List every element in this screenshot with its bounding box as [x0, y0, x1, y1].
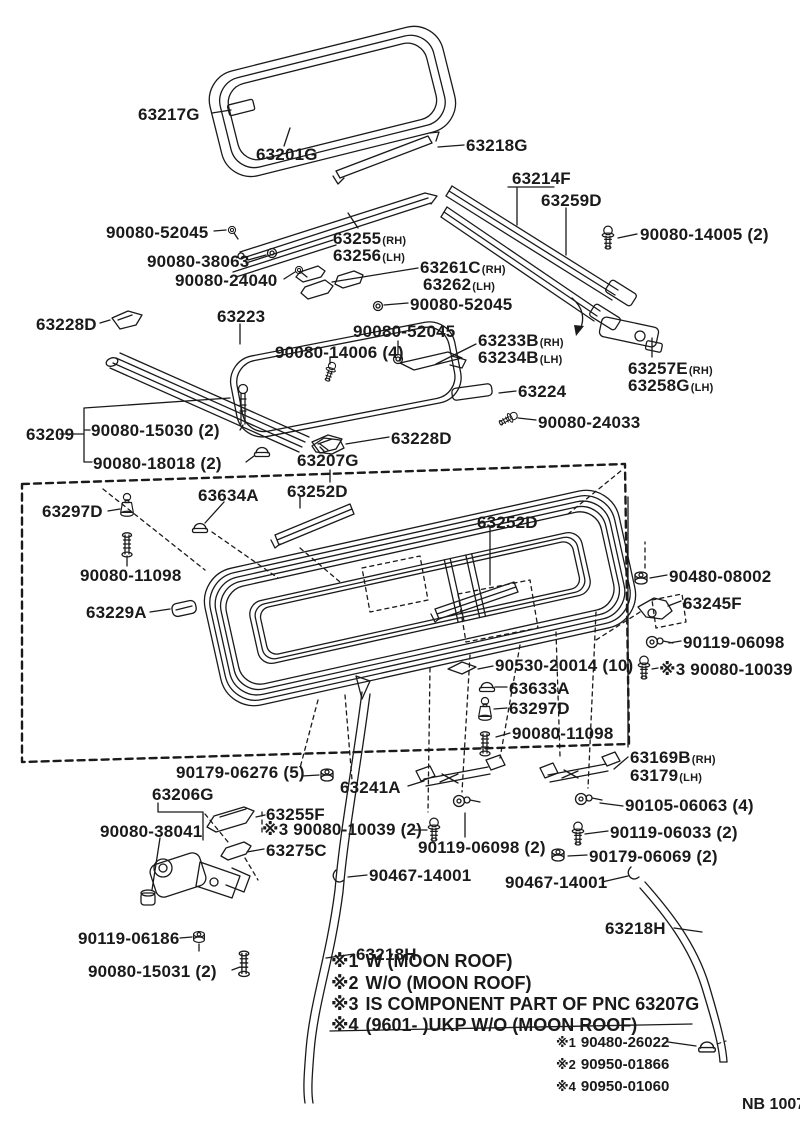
- part-label-90480-08002: 90480-08002: [669, 568, 771, 585]
- part-label-90080-38041: 90080-38041: [100, 823, 202, 840]
- part-label-63224: 63224: [518, 383, 566, 400]
- part-label-63634A: 63634A: [198, 487, 259, 504]
- part-label-63218G: 63218G: [466, 137, 528, 154]
- part-label-63233B: 63233B(RH): [478, 332, 564, 349]
- part-label-63297D: 63297D: [42, 503, 103, 520]
- part-label-90080-52045: 90080-52045: [353, 323, 455, 340]
- part-label-90105-060634: 90105-06063 (4): [625, 797, 754, 814]
- part-label-90080-11098: 90080-11098: [80, 567, 181, 584]
- figure-code: NB 1007: [742, 1097, 800, 1113]
- sub-note-1: ※190480-26022: [556, 1035, 669, 1050]
- bracket-63245F: [638, 598, 672, 619]
- garnish-63252D-top: [271, 504, 354, 548]
- part-label-63228D: 63228D: [36, 316, 97, 333]
- part-label-63257E: 63257E(RH): [628, 360, 713, 377]
- part-label-63206G: 63206G: [152, 786, 214, 803]
- bracket-63224: [451, 383, 492, 400]
- part-label-90080-11098: 90080-11098: [512, 725, 613, 742]
- slider-63261C-63262: [296, 266, 363, 299]
- part-label-63241A: 63241A: [340, 779, 401, 796]
- part-label-90080-24040: 90080-24040: [175, 272, 277, 289]
- clip-63228D-left: [112, 311, 142, 329]
- parts-diagram-canvas: 63217G63201G63218G63214F63259D90080-5204…: [0, 0, 800, 1126]
- part-label-63259D: 63259D: [541, 192, 602, 209]
- part-label-90080-38063: 90080-38063: [147, 253, 249, 270]
- part-label-63209: 63209: [26, 426, 74, 443]
- part-label-90119-06098: 90119-06098: [683, 634, 784, 651]
- part-label-63229A: 63229A: [86, 604, 147, 621]
- part-label-63234B: 63234B(LH): [478, 349, 563, 366]
- part-label-63214F: 63214F: [512, 170, 571, 187]
- note-line-2: ※2W/O (MOON ROOF): [331, 974, 532, 992]
- part-label-63245F: 63245F: [683, 595, 742, 612]
- drain-spout: [356, 676, 370, 699]
- part-label-90080-52045: 90080-52045: [410, 296, 512, 313]
- part-label-63256: 63256(LH): [333, 247, 405, 264]
- part-label-63207G: 63207G: [297, 452, 359, 469]
- part-label-63223: 63223: [217, 308, 265, 325]
- part-label-63275C: 63275C: [266, 842, 327, 859]
- part-label-90179-062765: 90179-06276 (5): [176, 764, 305, 781]
- part-label-90080-180182: 90080-18018 (2): [93, 455, 222, 472]
- bracket-63233B-63234B: [400, 352, 466, 370]
- part-label-90119-060332: 90119-06033 (2): [610, 824, 738, 841]
- housing-frame-drawing: [198, 484, 642, 712]
- part-label-63255: 63255(RH): [333, 230, 406, 247]
- part-label-90080-140052: 90080-14005 (2): [640, 226, 769, 243]
- sub-note-2: ※290950-01866: [556, 1057, 669, 1072]
- part-label-90119-060982: 90119-06098 (2): [418, 839, 546, 856]
- part-label-63252D: 63252D: [477, 514, 538, 531]
- part-label-63217G: 63217G: [138, 106, 200, 123]
- plate-63275C: [221, 842, 251, 860]
- part-label-90119-06186: 90119-06186: [78, 930, 179, 947]
- part-label-63218H: 63218H: [605, 920, 666, 937]
- part-label-90080-24033: 90080-24033: [538, 414, 640, 431]
- nut-icon: [635, 572, 647, 584]
- garnish-63252D-inner: [431, 582, 518, 622]
- part-label-63201G: 63201G: [256, 146, 318, 163]
- clip-63229A: [171, 600, 197, 618]
- part-label-63262: 63262(LH): [423, 276, 495, 293]
- part-label-63633A: 63633A: [509, 680, 570, 697]
- part-label-90080-140064: 90080-14006 (4): [275, 344, 404, 361]
- part-label-90080-52045: 90080-52045: [106, 224, 208, 241]
- part-label-63228D: 63228D: [391, 430, 452, 447]
- note-line-1: ※1W (MOON ROOF): [331, 952, 513, 970]
- molding-63218G: [333, 132, 439, 184]
- note-line-3: ※3IS COMPONENT PART OF PNC 63207G: [331, 995, 699, 1013]
- shim-90530-20014: [448, 662, 476, 674]
- part-label-63258G: 63258G(LH): [628, 377, 714, 394]
- part-label-63179: 63179(LH): [630, 767, 702, 784]
- bracket-63169B-63179: [540, 752, 620, 782]
- glass-clip-63217G: [227, 99, 255, 116]
- part-label-390080-10039: ※3 90080-10039: [659, 661, 793, 678]
- damper-90080-38041: [141, 890, 155, 905]
- part-label-90080-150312: 90080-15031 (2): [88, 963, 217, 980]
- part-label-90530-2001410: 90530-20014 (10): [495, 657, 633, 674]
- part-label-90080-150302: 90080-15030 (2): [91, 422, 220, 439]
- part-label-63297D: 63297D: [509, 700, 570, 717]
- part-label-90467-14001: 90467-14001: [369, 867, 471, 884]
- note-line-4: ※4(9601- )UKP W/O (MOON ROOF): [331, 1016, 637, 1034]
- part-label-63252D: 63252D: [287, 483, 348, 500]
- part-label-63261C: 63261C(RH): [420, 259, 506, 276]
- plate-63255F: [207, 807, 254, 832]
- part-label-390080-100392: ※3 90080-10039 (2): [262, 821, 422, 838]
- part-label-90467-14001: 90467-14001: [505, 874, 607, 891]
- bracket-63257E-63258G: [599, 316, 663, 352]
- part-label-90179-060692: 90179-06069 (2): [589, 848, 718, 865]
- sub-note-3: ※490950-01060: [556, 1079, 669, 1094]
- part-label-63169B: 63169B(RH): [630, 749, 716, 766]
